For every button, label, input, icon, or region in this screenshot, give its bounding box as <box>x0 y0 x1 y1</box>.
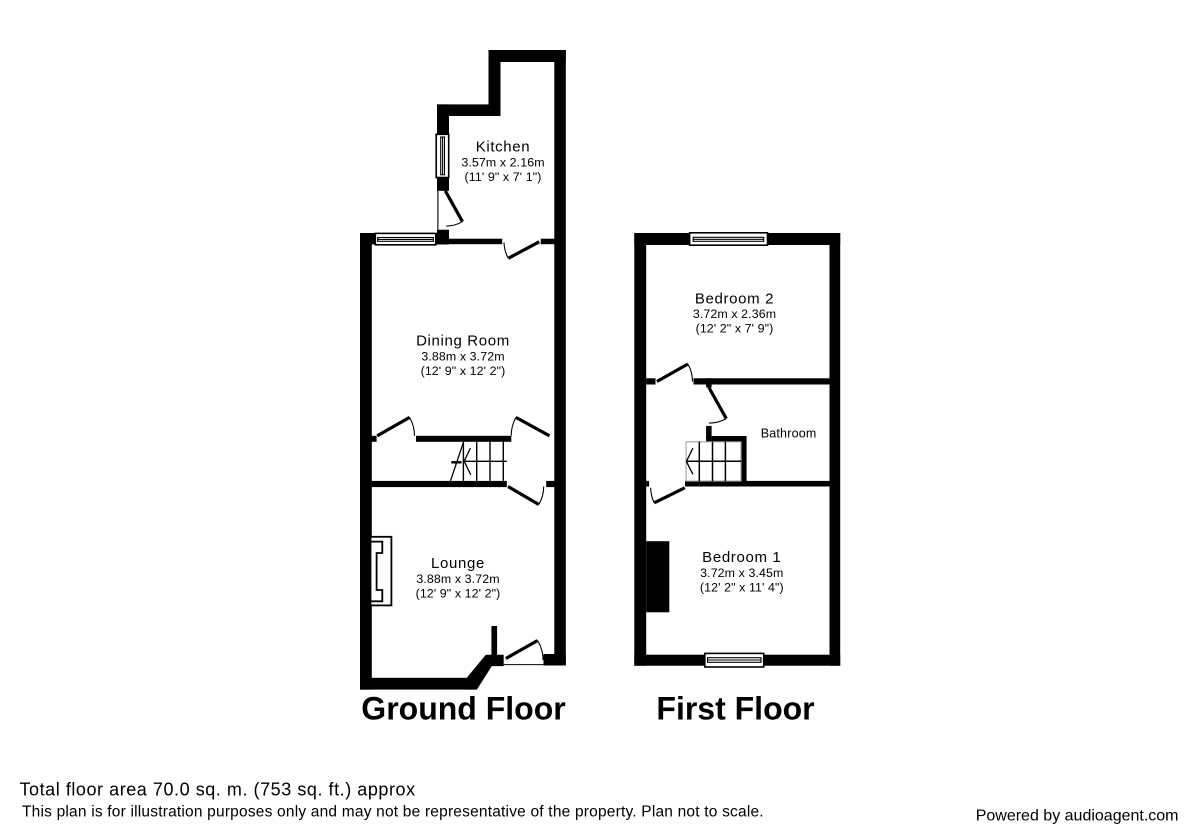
svg-text:3.72m x 2.36m: 3.72m x 2.36m <box>693 307 776 321</box>
svg-text:(11' 9" x 7' 1"): (11' 9" x 7' 1") <box>465 170 542 184</box>
svg-text:Bedroom 2: Bedroom 2 <box>695 290 774 307</box>
svg-text:This plan is for illustration: This plan is for illustration purposes o… <box>22 804 764 821</box>
svg-text:3.72m x 3.45m: 3.72m x 3.45m <box>700 566 783 580</box>
svg-text:First Floor: First Floor <box>656 691 814 727</box>
svg-text:(12' 2" x 11' 4"): (12' 2" x 11' 4") <box>700 580 784 594</box>
svg-text:(12' 9" x 12' 2"): (12' 9" x 12' 2") <box>416 586 501 600</box>
svg-text:(12' 2" x 7' 9"): (12' 2" x 7' 9") <box>696 322 774 336</box>
svg-text:Bedroom 1: Bedroom 1 <box>702 549 781 566</box>
svg-text:3.88m x 3.72m: 3.88m x 3.72m <box>421 350 504 364</box>
svg-text:Powered by audioagent.com: Powered by audioagent.com <box>976 807 1179 824</box>
svg-text:Bathroom: Bathroom <box>761 427 817 441</box>
svg-text:Lounge: Lounge <box>431 555 485 572</box>
svg-text:Kitchen: Kitchen <box>476 139 531 156</box>
svg-text:3.57m x 2.16m: 3.57m x 2.16m <box>461 156 544 170</box>
svg-text:Total floor area 70.0 sq. m. (: Total floor area 70.0 sq. m. (753 sq. ft… <box>20 779 416 799</box>
svg-text:Ground Floor: Ground Floor <box>361 691 565 727</box>
svg-text:(12' 9" x 12' 2"): (12' 9" x 12' 2") <box>421 364 506 378</box>
svg-text:Dining Room: Dining Room <box>416 333 510 350</box>
svg-text:3.88m x 3.72m: 3.88m x 3.72m <box>416 572 499 586</box>
